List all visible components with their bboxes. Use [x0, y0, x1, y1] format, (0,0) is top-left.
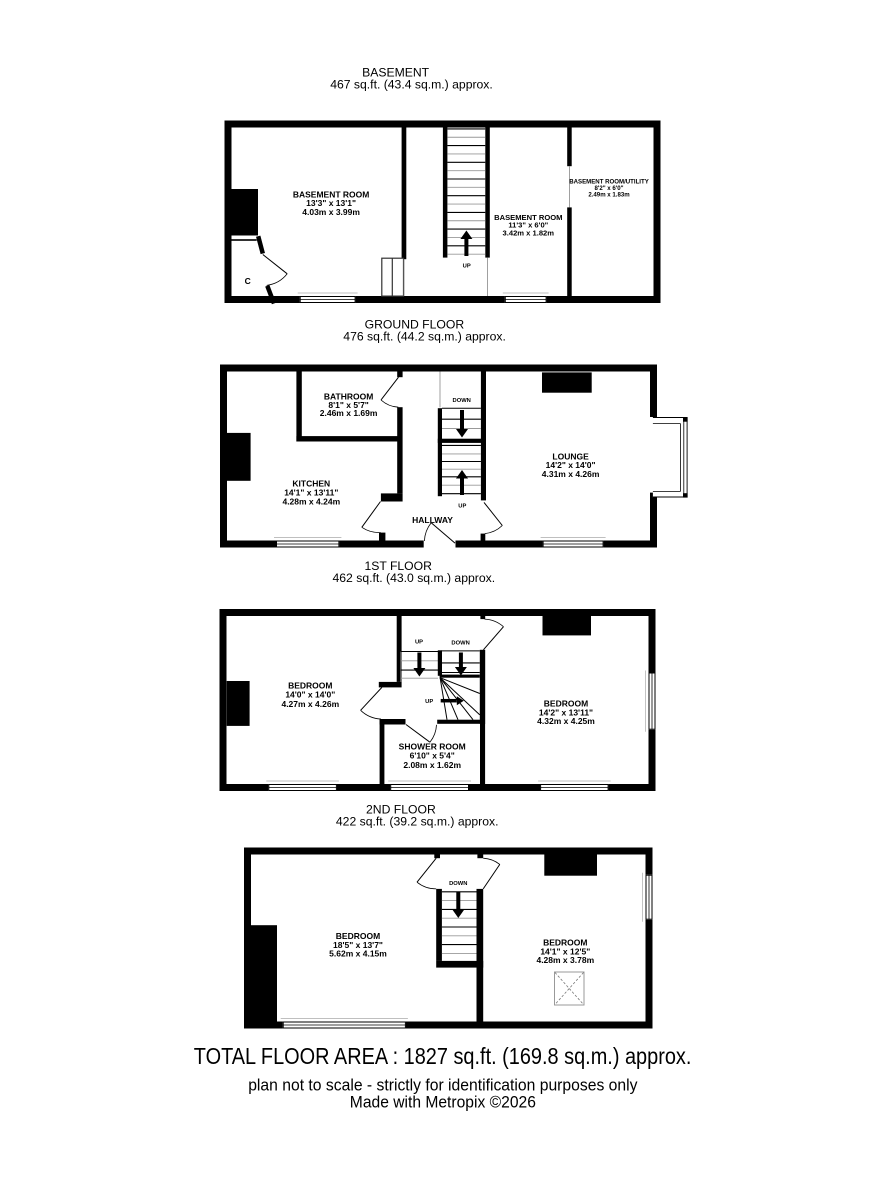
svg-text:422 sq.ft. (39.2 sq.m.) approx: 422 sq.ft. (39.2 sq.m.) approx. [336, 815, 499, 829]
svg-text:4.31m x 4.26m: 4.31m x 4.26m [542, 469, 600, 479]
svg-text:TOTAL FLOOR AREA : 1827 sq.ft.: TOTAL FLOOR AREA : 1827 sq.ft. (169.8 sq… [194, 1043, 692, 1069]
svg-text:DOWN: DOWN [451, 640, 469, 646]
svg-text:3.42m x 1.82m: 3.42m x 1.82m [503, 228, 555, 237]
svg-text:2.08m x 1.62m: 2.08m x 1.62m [403, 760, 461, 770]
svg-text:UP: UP [425, 699, 433, 705]
svg-text:UP: UP [415, 639, 423, 645]
svg-text:4.28m x 4.24m: 4.28m x 4.24m [282, 496, 340, 506]
svg-text:4.32m x 4.25m: 4.32m x 4.25m [537, 716, 595, 726]
svg-text:476 sq.ft. (44.2 sq.m.) approx: 476 sq.ft. (44.2 sq.m.) approx. [343, 330, 506, 344]
svg-text:Made with Metropix ©2026: Made with Metropix ©2026 [350, 1093, 536, 1111]
svg-text:2.46m x 1.69m: 2.46m x 1.69m [320, 408, 378, 418]
svg-text:C: C [245, 276, 251, 286]
svg-text:4.03m x 3.99m: 4.03m x 3.99m [302, 207, 360, 217]
svg-text:DOWN: DOWN [449, 881, 467, 887]
svg-text:4.27m x 4.26m: 4.27m x 4.26m [281, 699, 339, 709]
svg-text:UP: UP [463, 263, 471, 269]
svg-text:4.28m x 3.78m: 4.28m x 3.78m [536, 955, 594, 965]
svg-text:467 sq.ft. (43.4 sq.m.) approx: 467 sq.ft. (43.4 sq.m.) approx. [330, 78, 493, 92]
svg-text:DOWN: DOWN [453, 398, 471, 404]
svg-text:2.49m x 1.83m: 2.49m x 1.83m [588, 192, 630, 199]
svg-text:UP: UP [458, 504, 466, 510]
svg-text:462 sq.ft. (43.0 sq.m.) approx: 462 sq.ft. (43.0 sq.m.) approx. [333, 571, 496, 585]
svg-text:plan not to scale - strictly f: plan not to scale - strictly for identif… [248, 1077, 638, 1095]
svg-text:HALLWAY: HALLWAY [412, 515, 453, 525]
svg-text:5.62m x 4.15m: 5.62m x 4.15m [329, 949, 387, 959]
